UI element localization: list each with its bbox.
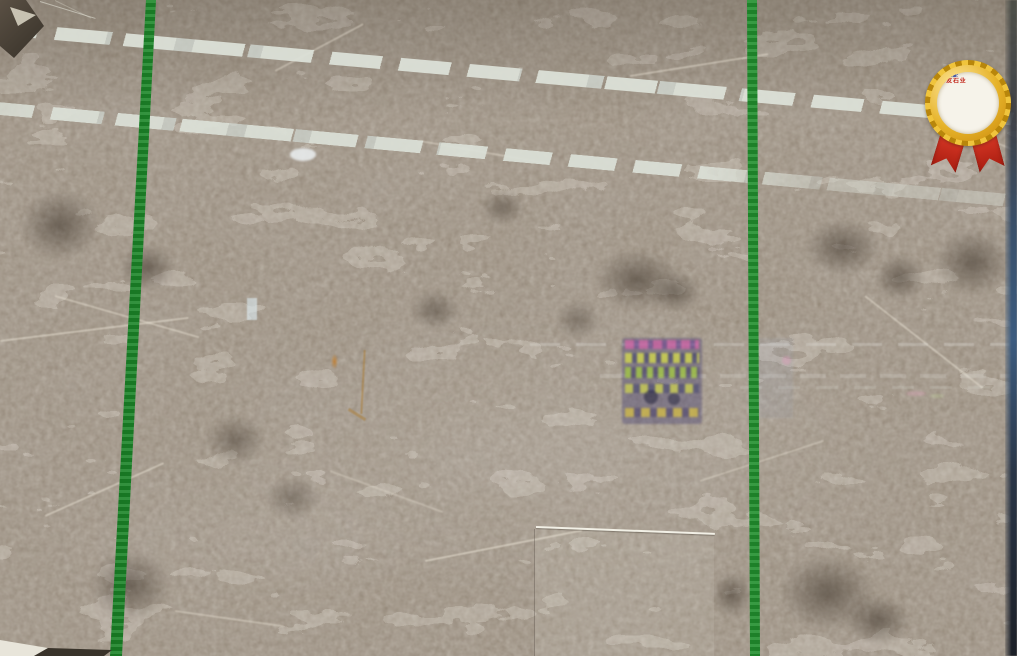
- badge-label-line: 日期:: [948, 73, 958, 78]
- front-slab-left-edge: [534, 529, 535, 656]
- award-badge: 三友石业 品名: 编号: 规格: 数量: 日期:: [922, 56, 1014, 168]
- colorful-sign-reflection: [622, 338, 702, 424]
- window-reflection-glare: [290, 148, 316, 161]
- green-reflection-speck: [930, 394, 944, 398]
- rust-mark: [331, 354, 338, 369]
- window-reflection-pane: [247, 298, 257, 320]
- badge-title: 三友石业: [939, 78, 966, 85]
- badge-label-face: 三友石业 品名: 编号: 规格: 数量: 日期:: [937, 72, 999, 134]
- pink-reflection-speck: [782, 356, 791, 365]
- surface-sheen-lower: [40, 430, 460, 650]
- faint-blue-reflection: [755, 338, 793, 418]
- pink-reflection-speck: [906, 391, 926, 396]
- marble-slab-photo: 三友石业 品名: 编号: 规格: 数量: 日期:: [0, 0, 1017, 656]
